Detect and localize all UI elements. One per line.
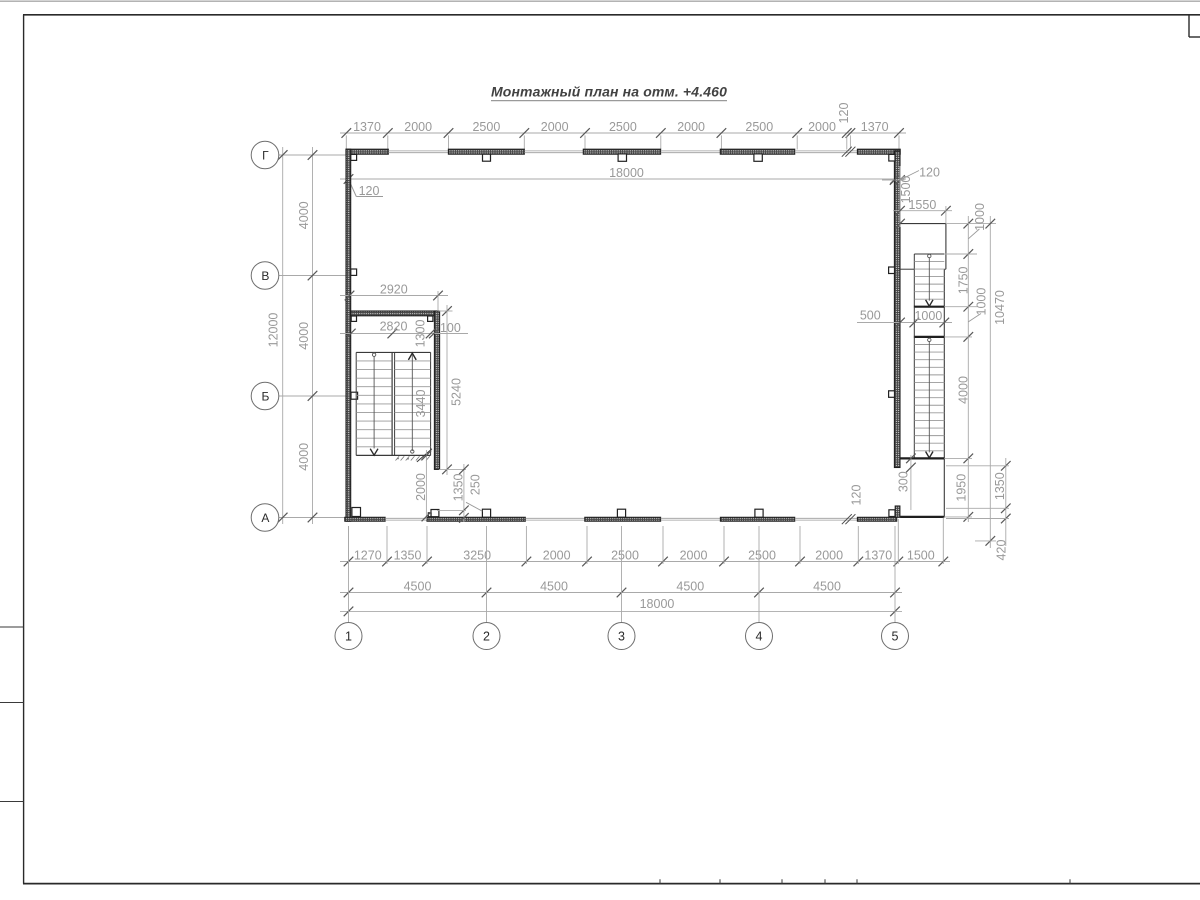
svg-text:2500: 2500	[472, 120, 500, 134]
svg-text:10470: 10470	[993, 290, 1007, 325]
svg-text:2000: 2000	[815, 548, 843, 562]
svg-text:1950: 1950	[955, 474, 969, 502]
svg-text:120: 120	[837, 103, 851, 124]
svg-text:1750: 1750	[957, 266, 971, 294]
svg-text:2500: 2500	[609, 120, 637, 134]
svg-text:2000: 2000	[404, 120, 432, 134]
svg-text:В: В	[261, 269, 269, 283]
svg-text:1300: 1300	[413, 320, 427, 348]
svg-text:А: А	[261, 511, 269, 525]
svg-text:120: 120	[850, 485, 864, 506]
svg-text:1370: 1370	[353, 120, 381, 134]
svg-text:4: 4	[756, 630, 763, 644]
svg-text:1270: 1270	[354, 548, 382, 562]
svg-text:2000: 2000	[677, 120, 705, 134]
svg-text:2920: 2920	[380, 282, 408, 296]
svg-text:2820: 2820	[380, 320, 408, 334]
svg-text:5240: 5240	[450, 378, 464, 406]
svg-text:1000: 1000	[914, 309, 942, 323]
svg-text:2000: 2000	[541, 120, 569, 134]
svg-text:4000: 4000	[957, 376, 971, 404]
svg-text:420: 420	[995, 540, 1009, 561]
svg-text:1350: 1350	[452, 473, 466, 501]
svg-text:1000: 1000	[973, 203, 987, 231]
svg-text:Б: Б	[261, 389, 269, 403]
svg-text:18000: 18000	[640, 597, 675, 611]
svg-text:1: 1	[345, 630, 352, 644]
svg-text:3250: 3250	[463, 548, 491, 562]
svg-text:2500: 2500	[611, 548, 639, 562]
svg-text:12000: 12000	[266, 313, 280, 348]
svg-text:4500: 4500	[540, 580, 568, 594]
svg-text:Г: Г	[262, 148, 269, 162]
svg-text:Монтажный план на отм. +4.460: Монтажный план на отм. +4.460	[491, 84, 727, 100]
svg-text:2000: 2000	[680, 548, 708, 562]
svg-text:2500: 2500	[745, 120, 773, 134]
svg-text:4500: 4500	[404, 580, 432, 594]
svg-text:1350: 1350	[394, 548, 422, 562]
svg-text:120: 120	[919, 166, 940, 180]
svg-text:1370: 1370	[861, 120, 889, 134]
svg-text:5: 5	[892, 630, 899, 644]
svg-text:18000: 18000	[609, 166, 644, 180]
svg-text:1350: 1350	[993, 472, 1007, 500]
svg-text:2500: 2500	[748, 548, 776, 562]
svg-text:4000: 4000	[297, 201, 311, 229]
svg-text:1500: 1500	[907, 548, 935, 562]
svg-text:4500: 4500	[676, 580, 704, 594]
svg-text:1000: 1000	[975, 288, 989, 316]
svg-text:2000: 2000	[808, 120, 836, 134]
svg-text:250: 250	[468, 474, 482, 495]
svg-text:120: 120	[359, 184, 380, 198]
svg-text:2: 2	[483, 630, 490, 644]
svg-text:4500: 4500	[813, 580, 841, 594]
svg-text:2000: 2000	[543, 548, 571, 562]
svg-text:3440: 3440	[414, 390, 428, 418]
svg-text:1550: 1550	[908, 198, 936, 212]
svg-text:2000: 2000	[414, 473, 428, 501]
svg-text:500: 500	[860, 309, 881, 323]
svg-text:4000: 4000	[297, 322, 311, 350]
svg-text:300: 300	[896, 471, 910, 492]
svg-text:4000: 4000	[297, 443, 311, 471]
svg-text:100: 100	[440, 321, 461, 335]
svg-text:3: 3	[618, 630, 625, 644]
svg-text:1370: 1370	[864, 548, 892, 562]
